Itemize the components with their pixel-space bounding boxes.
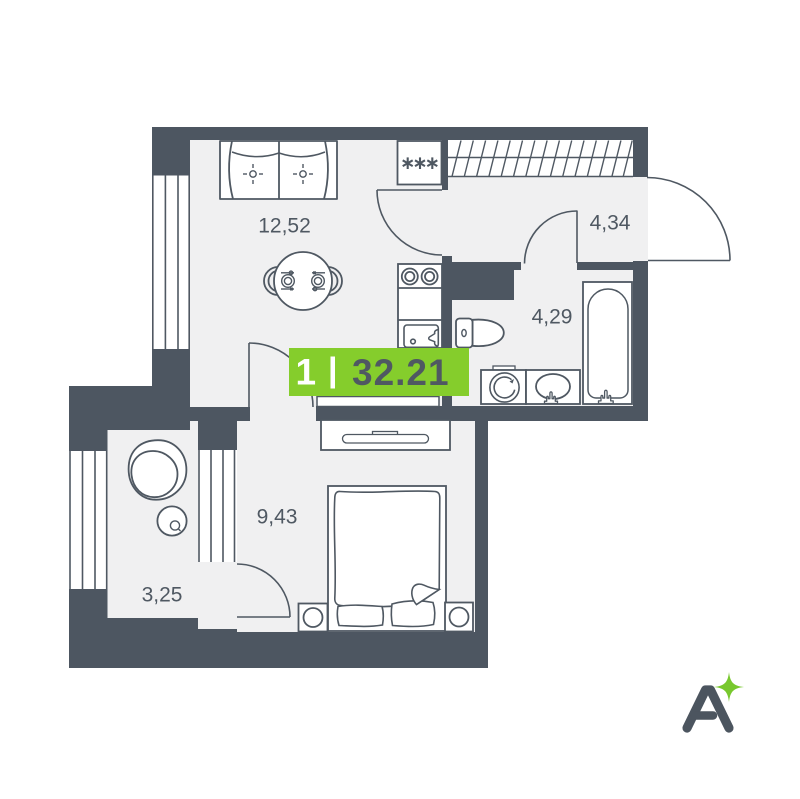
svg-text:3,25: 3,25 xyxy=(142,584,183,607)
svg-text:32.21: 32.21 xyxy=(352,352,450,393)
svg-text:4,34: 4,34 xyxy=(590,212,631,235)
svg-text:9,43: 9,43 xyxy=(257,506,298,529)
svg-text:4,29: 4,29 xyxy=(532,306,573,329)
svg-text:12,52: 12,52 xyxy=(258,215,311,238)
svg-text:1: 1 xyxy=(296,352,317,393)
